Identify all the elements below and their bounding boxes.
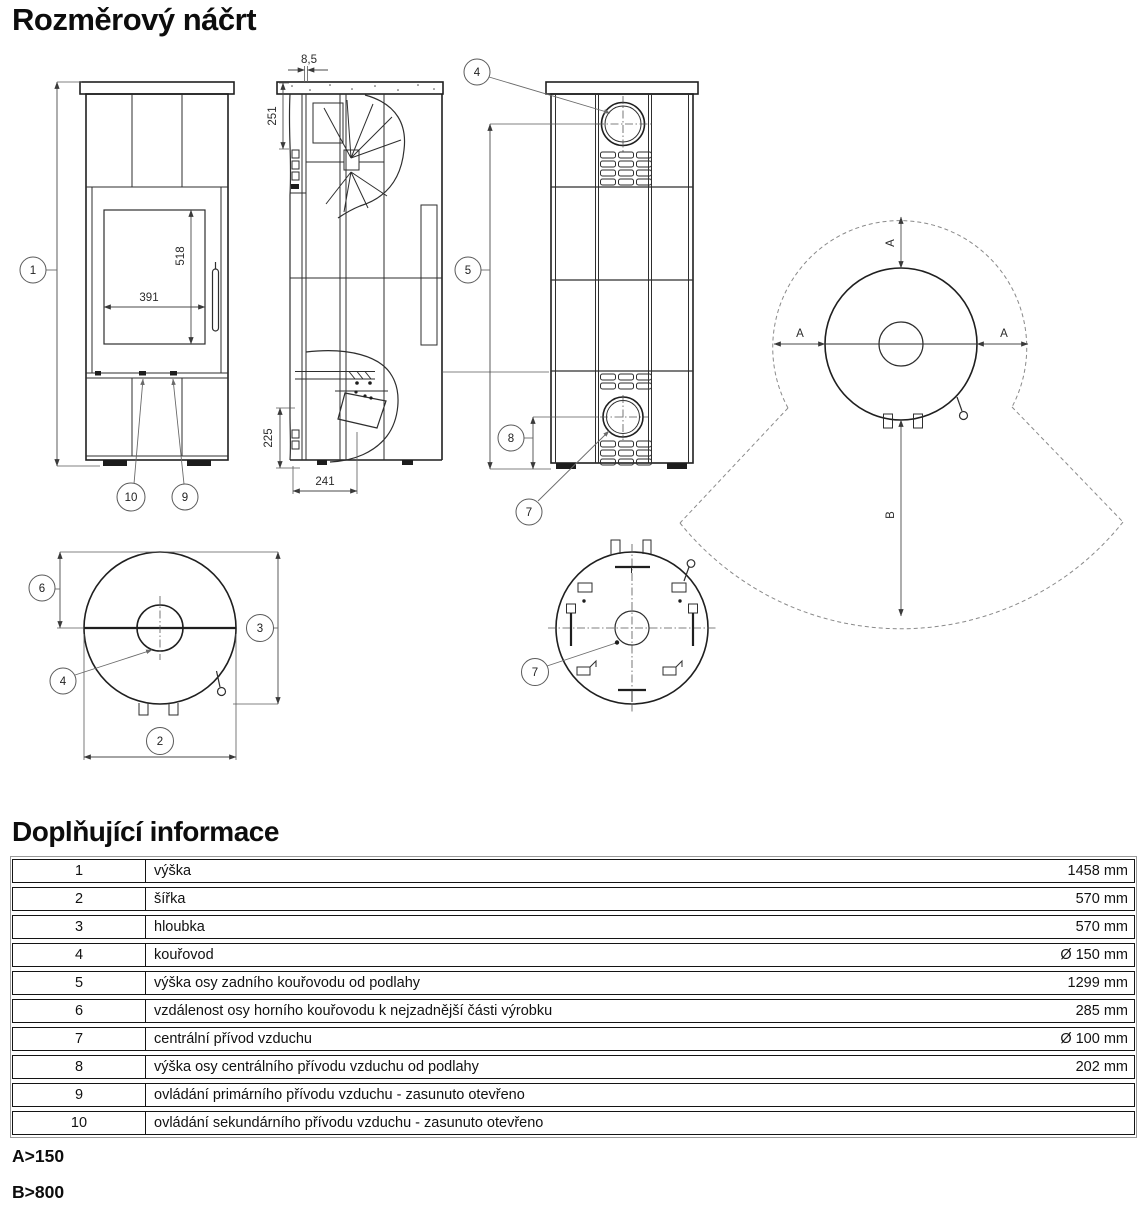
dim-gap: 8,5 (301, 54, 317, 66)
row-number: 10 (13, 1112, 146, 1134)
row-number: 5 (13, 972, 146, 994)
callout-7-bottom: 7 (522, 659, 549, 686)
row-label: vzdálenost osy horního kouřovodu k nejza… (146, 1003, 958, 1019)
callout-7-back-label: 7 (526, 507, 532, 519)
row-value: 570 mm (958, 891, 1134, 907)
back-view: 4 5 8 7 (455, 59, 698, 525)
dim-a-top: A (885, 239, 897, 247)
callout-3: 3 (247, 615, 274, 642)
back-vent-grid-mid (601, 374, 652, 389)
callout-4-top: 4 (50, 668, 76, 694)
row-value: Ø 150 mm (958, 947, 1134, 963)
dim-a-left: A (796, 328, 804, 340)
table-row: 3 hloubka 570 mm (12, 915, 1135, 939)
back-vent-grid-bottom (601, 441, 652, 465)
dim-glass-width: 391 (139, 292, 158, 304)
table-row: 2 šířka 570 mm (12, 887, 1135, 911)
row-value: 570 mm (958, 919, 1134, 935)
table-row: 7 centrální přívod vzduchu Ø 100 mm (12, 1027, 1135, 1051)
air-intake-mechanism (295, 351, 398, 462)
row-label: výška (146, 863, 958, 879)
callout-9: 9 (172, 484, 198, 510)
row-number: 7 (13, 1028, 146, 1050)
row-value: 202 mm (958, 1059, 1134, 1075)
info-table: 1 výška 1458 mm 2 šířka 570 mm 3 hloubka… (10, 856, 1137, 1138)
back-vent-grid-top (601, 152, 652, 185)
row-number: 1 (13, 860, 146, 882)
dim-depth: 241 (315, 476, 334, 488)
row-number: 2 (13, 888, 146, 910)
table-row: 1 výška 1458 mm (12, 859, 1135, 883)
callout-10-label: 10 (125, 492, 138, 504)
note-clearance-b: B>800 (12, 1182, 64, 1203)
callout-5: 5 (455, 257, 481, 283)
table-row: 5 výška osy zadního kouřovodu od podlahy… (12, 971, 1135, 995)
row-value: 285 mm (958, 1003, 1134, 1019)
callout-6: 6 (29, 575, 55, 601)
callout-8-label: 8 (508, 433, 514, 445)
row-label: kouřovod (146, 947, 958, 963)
callout-3-label: 3 (257, 623, 263, 635)
callout-2-label: 2 (157, 736, 163, 748)
row-number: 6 (13, 1000, 146, 1022)
row-number: 9 (13, 1084, 146, 1106)
callout-4-back-label: 4 (474, 67, 481, 79)
clearance-diagram: A A A B (680, 217, 1123, 629)
row-label: výška osy zadního kouřovodu od podlahy (146, 975, 958, 991)
row-number: 3 (13, 916, 146, 938)
callout-7-back: 7 (516, 499, 542, 525)
row-label: hloubka (146, 919, 958, 935)
row-label: centrální přívod vzduchu (146, 1031, 958, 1047)
flue-damper-mechanism (306, 95, 405, 218)
row-value: Ø 100 mm (958, 1031, 1134, 1047)
table-row: 6 vzdálenost osy horního kouřovodu k nej… (12, 999, 1135, 1023)
dim-a-right: A (1000, 328, 1008, 340)
row-label: ovládání sekundárního přívodu vzduchu - … (146, 1115, 958, 1131)
page-title: Rozměrový náčrt (12, 2, 256, 38)
note-clearance-a: A>150 (12, 1146, 64, 1167)
row-number: 4 (13, 944, 146, 966)
flue-outlet (596, 96, 652, 152)
callout-9-label: 9 (182, 492, 188, 504)
dimensional-drawing: 1 518 391 10 9 (0, 48, 1147, 814)
table-row: 8 výška osy centrálního přívodu vzduchu … (12, 1055, 1135, 1079)
row-value: 1458 mm (958, 863, 1134, 879)
callout-1: 1 (20, 257, 46, 283)
stone-section-dots (291, 84, 435, 91)
top-view: 6 3 2 4 (29, 552, 278, 760)
callout-8: 8 (498, 425, 524, 451)
callout-4-top-label: 4 (60, 676, 67, 688)
bottom-view: 7 (522, 540, 717, 712)
row-label: šířka (146, 891, 958, 907)
section-title-additional-info: Doplňující informace (12, 816, 279, 848)
callout-1-label: 1 (30, 265, 36, 277)
callout-10: 10 (117, 483, 145, 511)
row-number: 8 (13, 1056, 146, 1078)
front-view: 1 518 391 10 9 (20, 82, 234, 511)
dim-b: B (885, 511, 897, 519)
dim-top-section: 251 (267, 106, 279, 125)
row-label: ovládání primárního přívodu vzduchu - za… (146, 1087, 958, 1103)
row-value: 1299 mm (958, 975, 1134, 991)
callout-7-bottom-label: 7 (532, 667, 538, 679)
table-row: 10 ovládání sekundárního přívodu vzduchu… (12, 1111, 1135, 1135)
clearance-handle (957, 397, 968, 420)
callout-5-label: 5 (465, 265, 471, 277)
callout-6-label: 6 (39, 583, 45, 595)
dim-glass-height: 518 (175, 246, 187, 265)
callout-2: 2 (147, 728, 174, 755)
table-row: 4 kouřovod Ø 150 mm (12, 943, 1135, 967)
row-label: výška osy centrálního přívodu vzduchu od… (146, 1059, 958, 1075)
dim-bottom-section: 225 (263, 428, 275, 447)
table-row: 9 ovládání primárního přívodu vzduchu - … (12, 1083, 1135, 1107)
top-view-handle (217, 671, 226, 696)
callout-4-back: 4 (464, 59, 490, 85)
door-handle (213, 262, 219, 331)
